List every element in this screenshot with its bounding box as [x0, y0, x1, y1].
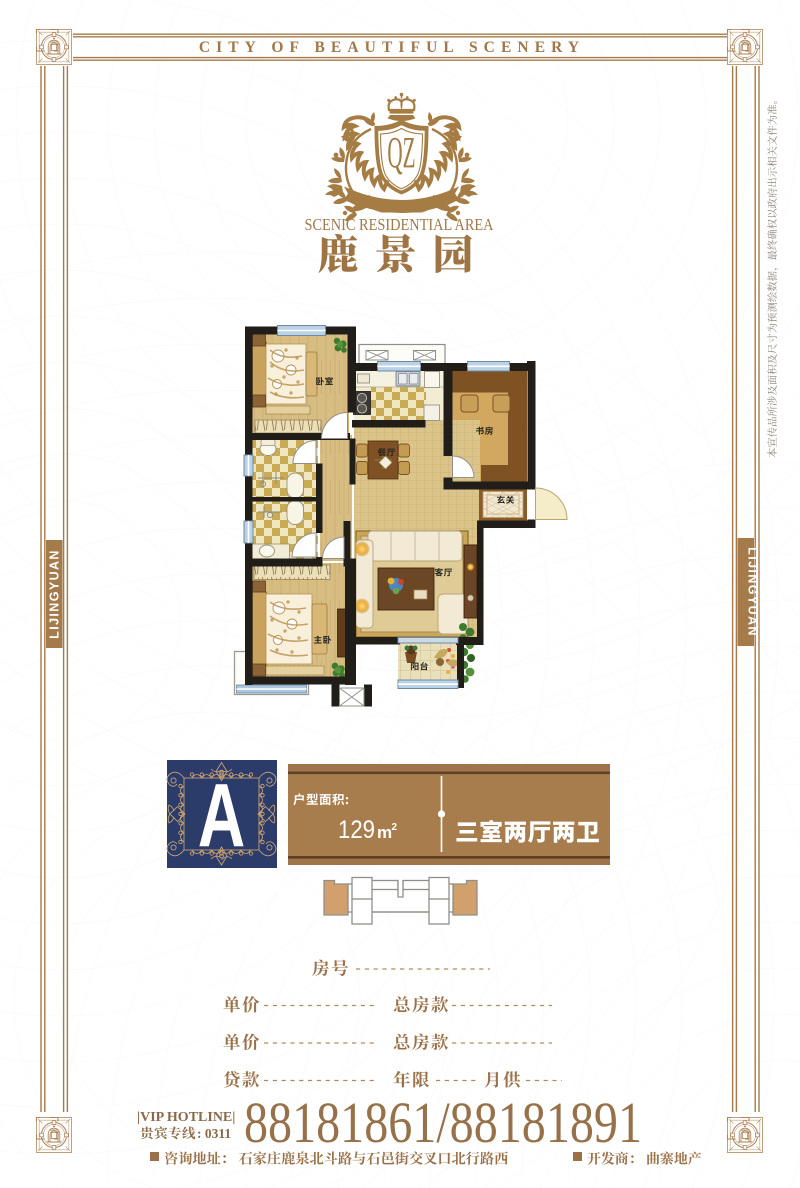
- svg-text:|VIP HOTLINE|: |VIP HOTLINE|: [137, 1110, 235, 1125]
- svg-text:QZ: QZ: [387, 129, 415, 177]
- svg-text:CITY OF BEAUTIFUL SCENERY: CITY OF BEAUTIFUL SCENERY: [199, 39, 585, 56]
- svg-text:2: 2: [392, 822, 398, 833]
- svg-text:: 0311: : 0311: [197, 1126, 231, 1141]
- svg-text:129: 129: [338, 816, 375, 844]
- svg-text:88181861/88181891: 88181861/88181891: [244, 1090, 642, 1155]
- svg-text:LIJINGYUAN: LIJINGYUAN: [48, 549, 62, 639]
- svg-text:SCENIC RESIDENTIAL AREA: SCENIC RESIDENTIAL AREA: [305, 215, 494, 234]
- svg-text:LIJINGYUAN: LIJINGYUAN: [746, 547, 760, 637]
- svg-text:A: A: [198, 765, 245, 866]
- svg-text:m: m: [377, 823, 392, 842]
